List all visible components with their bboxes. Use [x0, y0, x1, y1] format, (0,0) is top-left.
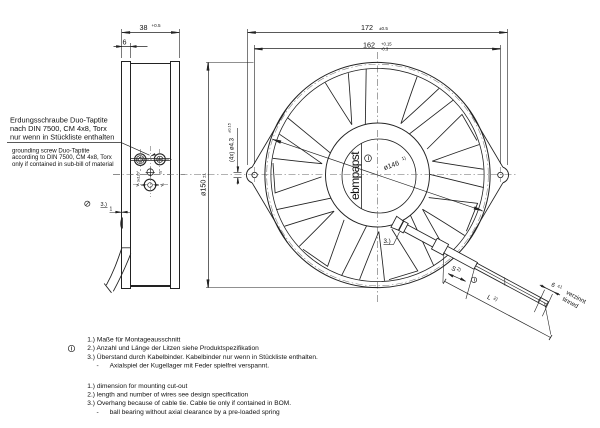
svg-text:(4x) ø4.3: (4x) ø4.3 — [230, 137, 236, 162]
svg-text:±1: ±1 — [202, 172, 207, 178]
svg-text:1: 1 — [110, 207, 113, 213]
svg-text:3.) Überstand durch Kabelbinde: 3.) Überstand durch Kabelbinder. Kabelbi… — [87, 353, 318, 361]
svg-text:±0.15: ±0.15 — [227, 122, 232, 133]
svg-text:3.): 3.) — [101, 202, 108, 208]
svg-text:only if contained in sub-bill: only if contained in sub-bill of materia… — [12, 161, 114, 168]
svg-text:- Axialspiel der Kugellag: - Axialspiel der Kugellager mit Feder sp… — [87, 363, 269, 370]
svg-text:3x120°: 3x120° — [137, 170, 141, 182]
svg-text:3.) Overhang because of cable: 3.) Overhang because of cable tie. Cable… — [87, 400, 291, 407]
svg-text:38: 38 — [140, 23, 148, 32]
svg-text:ebmpapst: ebmpapst — [348, 151, 362, 200]
svg-text:1.) dimension for mounting cut: 1.) dimension for mounting cut-out — [87, 383, 187, 390]
svg-text:2.) length and number of wire: 2.) length and number of wires see desig… — [87, 392, 248, 399]
svg-text:3.): 3.) — [384, 238, 391, 245]
svg-text:+0.5: +0.5 — [152, 23, 162, 28]
svg-text:1.) Maße für Montageausschnitt: 1.) Maße für Montageausschnitt — [87, 337, 180, 344]
svg-text:- ball bearing without ax: - ball bearing without axial clearance b… — [87, 409, 280, 416]
svg-text:2.) Anzahl und Länge der Litze: 2.) Anzahl und Länge der Litzen siehe Pr… — [87, 345, 259, 352]
svg-text:162: 162 — [363, 41, 375, 50]
svg-text:±0.5: ±0.5 — [379, 26, 388, 31]
svg-text:6: 6 — [123, 38, 127, 47]
svg-text:ø150: ø150 — [199, 180, 208, 196]
svg-text:nur wenn in Stückliste enthalt: nur wenn in Stückliste enthalten — [10, 133, 114, 142]
svg-text:172: 172 — [361, 23, 373, 32]
svg-text:-0.3: -0.3 — [381, 47, 389, 52]
